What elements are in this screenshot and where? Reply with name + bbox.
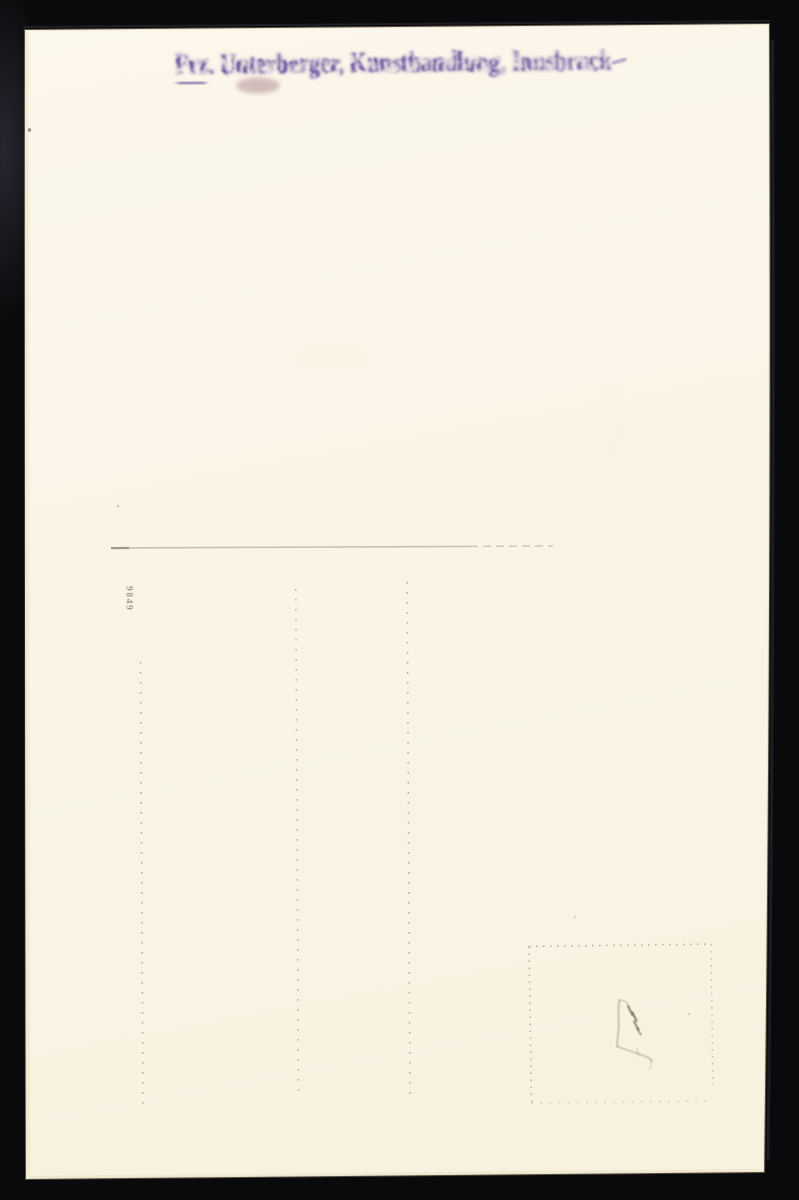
svg-text:Frz. Unterberger, Kunsthandlun: Frz. Unterberger, Kunsthandlung, Innsbru… xyxy=(175,46,613,81)
svg-text:9849: 9849 xyxy=(124,586,134,611)
